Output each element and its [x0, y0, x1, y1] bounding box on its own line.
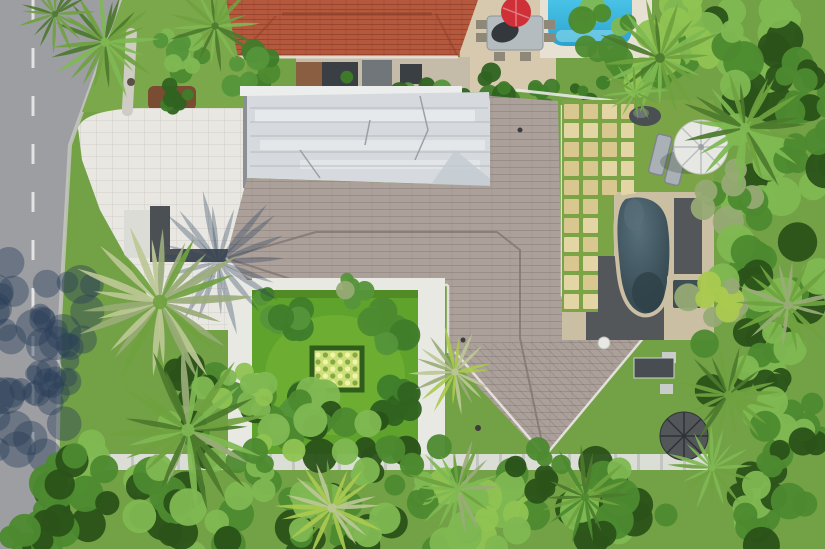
- tree-canopy: [691, 195, 716, 220]
- aerial-photo: [0, 0, 825, 549]
- tree-shadow: [60, 351, 79, 370]
- tree-canopy: [354, 410, 381, 437]
- tree-canopy: [353, 457, 380, 484]
- tree-canopy: [568, 6, 596, 34]
- tree-canopy: [427, 434, 452, 459]
- parterre-plant: [345, 352, 350, 357]
- tree-canopy: [761, 455, 783, 477]
- parterre-plant: [323, 352, 328, 357]
- tree-canopy: [712, 286, 729, 303]
- parterre-plant: [345, 366, 350, 371]
- tree-canopy: [256, 455, 274, 473]
- paver-stone: [583, 275, 598, 290]
- paver-stone: [602, 142, 617, 157]
- palm-center: [454, 485, 462, 493]
- parterre-plant: [315, 359, 320, 364]
- paver-stone: [602, 180, 617, 195]
- paver-stone: [583, 237, 598, 252]
- palm-center: [655, 53, 665, 63]
- shrub: [184, 58, 200, 74]
- tree-canopy: [593, 4, 611, 22]
- palm-center: [52, 11, 58, 17]
- palm-center: [632, 89, 638, 95]
- tree-canopy: [503, 517, 531, 545]
- tree-canopy: [778, 222, 817, 261]
- tree-canopy: [695, 289, 715, 309]
- paver-stone: [583, 199, 598, 214]
- paver-stone: [583, 256, 598, 271]
- parterre-plant: [330, 359, 335, 364]
- tree-shadow: [60, 369, 78, 387]
- hedge-bush: [577, 86, 588, 97]
- tree-canopy: [122, 499, 156, 533]
- garden-bush: [375, 332, 398, 355]
- equipment-pad: [660, 384, 673, 394]
- parterre-plant: [330, 352, 335, 357]
- parterre-plant: [338, 352, 343, 357]
- tree-canopy: [384, 475, 405, 496]
- parterre-plant: [345, 359, 350, 364]
- tree-canopy: [538, 469, 558, 489]
- paver-stone: [564, 161, 579, 176]
- paver-stone: [564, 275, 579, 290]
- parterre-plant: [330, 373, 335, 378]
- paver-stone: [602, 161, 617, 176]
- tree-canopy: [721, 20, 744, 43]
- paver-stone: [621, 161, 636, 176]
- shrub: [164, 54, 182, 72]
- palm-center: [327, 503, 336, 512]
- palm-center: [724, 391, 732, 399]
- umbrella-finial: [698, 144, 704, 150]
- parterre-plant: [330, 366, 335, 371]
- tree-canopy: [733, 503, 757, 527]
- tree-canopy: [793, 68, 818, 93]
- paver-stone: [564, 142, 579, 157]
- patio-chair: [544, 33, 555, 42]
- garden-bush: [268, 304, 294, 330]
- tree-canopy: [537, 450, 553, 466]
- garden-bush: [336, 281, 355, 300]
- tree-shadow: [0, 431, 36, 467]
- tree-canopy: [607, 457, 631, 481]
- paver-stone: [564, 256, 579, 271]
- paver-stone: [564, 199, 579, 214]
- parterre-plant: [338, 380, 343, 385]
- equipment-panel: [634, 358, 674, 378]
- hedge-bush: [497, 81, 511, 95]
- aerial-photo-stage: [0, 0, 825, 549]
- palm-center: [181, 423, 194, 436]
- pool-reflection: [624, 199, 644, 231]
- hedge-bush: [340, 71, 353, 84]
- tree-canopy: [240, 374, 261, 395]
- parterre-plant: [352, 359, 357, 364]
- tree-canopy: [62, 443, 87, 468]
- tree-canopy: [252, 479, 276, 503]
- paver-stone: [564, 123, 579, 138]
- paver-stone: [583, 294, 598, 309]
- tree-canopy: [590, 521, 617, 548]
- paver-stone: [621, 142, 636, 157]
- tree-canopy: [789, 427, 817, 455]
- paver-stone: [583, 161, 598, 176]
- paver-stone: [564, 180, 579, 195]
- tree-canopy: [302, 438, 337, 473]
- paver-stone: [564, 294, 579, 309]
- patio-chair: [544, 20, 555, 29]
- roof-vent: [518, 128, 523, 133]
- tree-canopy: [282, 439, 305, 462]
- top-walkway: [252, 278, 418, 290]
- parterre-plant: [338, 373, 343, 378]
- tree-canopy: [375, 437, 395, 457]
- paver-stone: [583, 142, 598, 157]
- tree-canopy: [771, 483, 808, 520]
- tree-canopy: [369, 503, 400, 534]
- paver-stone: [564, 218, 579, 233]
- fence-post: [660, 454, 663, 470]
- tree-canopy: [293, 403, 327, 437]
- white-roof-streak: [255, 110, 475, 122]
- parterre-plant: [315, 352, 320, 357]
- paver-stone: [583, 218, 598, 233]
- paver-stone: [621, 180, 636, 195]
- tree-canopy: [8, 514, 41, 547]
- white-roof-streak: [260, 140, 485, 150]
- patio-chair: [494, 52, 505, 61]
- parterre-plant: [345, 373, 350, 378]
- shrub: [229, 56, 245, 72]
- paver-stone: [583, 180, 598, 195]
- hedge-bush: [596, 76, 610, 90]
- fence-post: [637, 454, 640, 470]
- palm-center: [783, 300, 792, 309]
- shrub: [182, 89, 193, 100]
- roof-shade-on-lawn: [252, 290, 418, 298]
- tree-canopy: [801, 393, 823, 415]
- roof-vent: [475, 425, 481, 431]
- parterre-plant: [345, 380, 350, 385]
- tree-canopy: [90, 455, 118, 483]
- paver-stone: [583, 104, 598, 119]
- outdoor-equipment: [400, 64, 422, 84]
- pool-deep-shade: [632, 272, 664, 312]
- outdoor-equipment: [362, 60, 392, 90]
- parterre-plant: [323, 373, 328, 378]
- tree-canopy: [404, 454, 423, 473]
- paver-stone: [564, 237, 579, 252]
- paver-stone: [602, 123, 617, 138]
- parterre-plant: [323, 366, 328, 371]
- palm-center: [153, 295, 167, 309]
- palm-center: [740, 123, 750, 133]
- garden-bush: [355, 281, 375, 301]
- paver-stone: [564, 104, 579, 119]
- tree-canopy: [224, 481, 253, 510]
- palm-center: [708, 464, 715, 471]
- tree-canopy: [690, 330, 718, 358]
- tree-canopy: [575, 35, 597, 57]
- palm-center: [581, 493, 589, 501]
- palm-center: [451, 368, 458, 375]
- patio-chair: [476, 20, 487, 29]
- side-table: [598, 337, 610, 349]
- patio-chair: [520, 52, 531, 61]
- paver-stone: [621, 123, 636, 138]
- patio-chair: [476, 33, 487, 42]
- tree-shadow: [25, 365, 42, 382]
- garden-bush: [357, 307, 386, 336]
- parterre-plant: [338, 359, 343, 364]
- shrub: [163, 91, 179, 107]
- tree-canopy: [159, 523, 182, 546]
- parterre-plant: [323, 359, 328, 364]
- parterre-plant: [338, 366, 343, 371]
- tree-canopy: [655, 504, 678, 527]
- paver-stone: [583, 123, 598, 138]
- shrub: [153, 33, 168, 48]
- parterre-plant: [352, 352, 357, 357]
- tree-canopy: [408, 490, 425, 507]
- roof-vent: [461, 338, 466, 343]
- tree-shadow: [47, 406, 82, 441]
- tree-canopy: [332, 438, 359, 465]
- palm-center: [100, 37, 109, 46]
- parterre-plant: [352, 373, 357, 378]
- parterre-plant: [352, 366, 357, 371]
- parterre-plant: [315, 366, 320, 371]
- hedge-bush: [481, 63, 501, 83]
- parterre-plant: [352, 380, 357, 385]
- paver-stone: [602, 104, 617, 119]
- tree-canopy: [95, 491, 119, 515]
- trunk-knot: [127, 78, 135, 86]
- garden-bush: [397, 382, 420, 405]
- palm-center: [211, 22, 218, 29]
- tree-shadow: [33, 270, 61, 298]
- tree-canopy: [505, 456, 527, 478]
